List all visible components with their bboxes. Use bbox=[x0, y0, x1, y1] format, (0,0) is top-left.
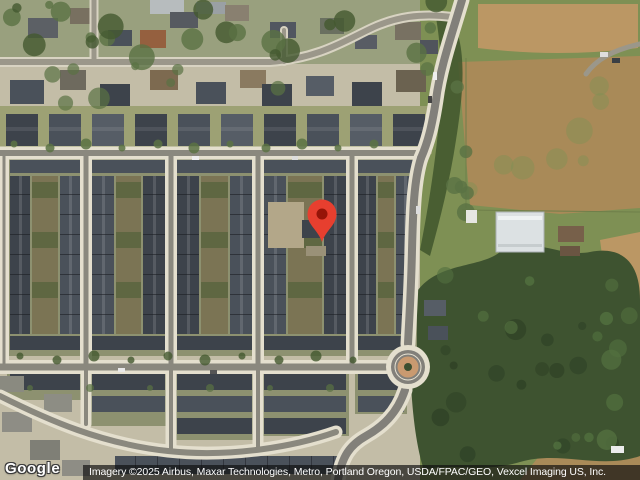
attribution-bar: Imagery ©2025 Airbus, Maxar Technologies… bbox=[83, 465, 640, 480]
attribution-text[interactable]: Imagery ©2025 Airbus, Maxar Technologies… bbox=[89, 465, 606, 480]
google-logo[interactable]: Google bbox=[5, 460, 60, 477]
location-pin-icon[interactable] bbox=[303, 198, 341, 244]
pin-dot bbox=[317, 209, 328, 220]
map-viewport[interactable]: Google Imagery ©2025 Airbus, Maxar Techn… bbox=[0, 0, 640, 480]
pin-body bbox=[308, 200, 337, 243]
